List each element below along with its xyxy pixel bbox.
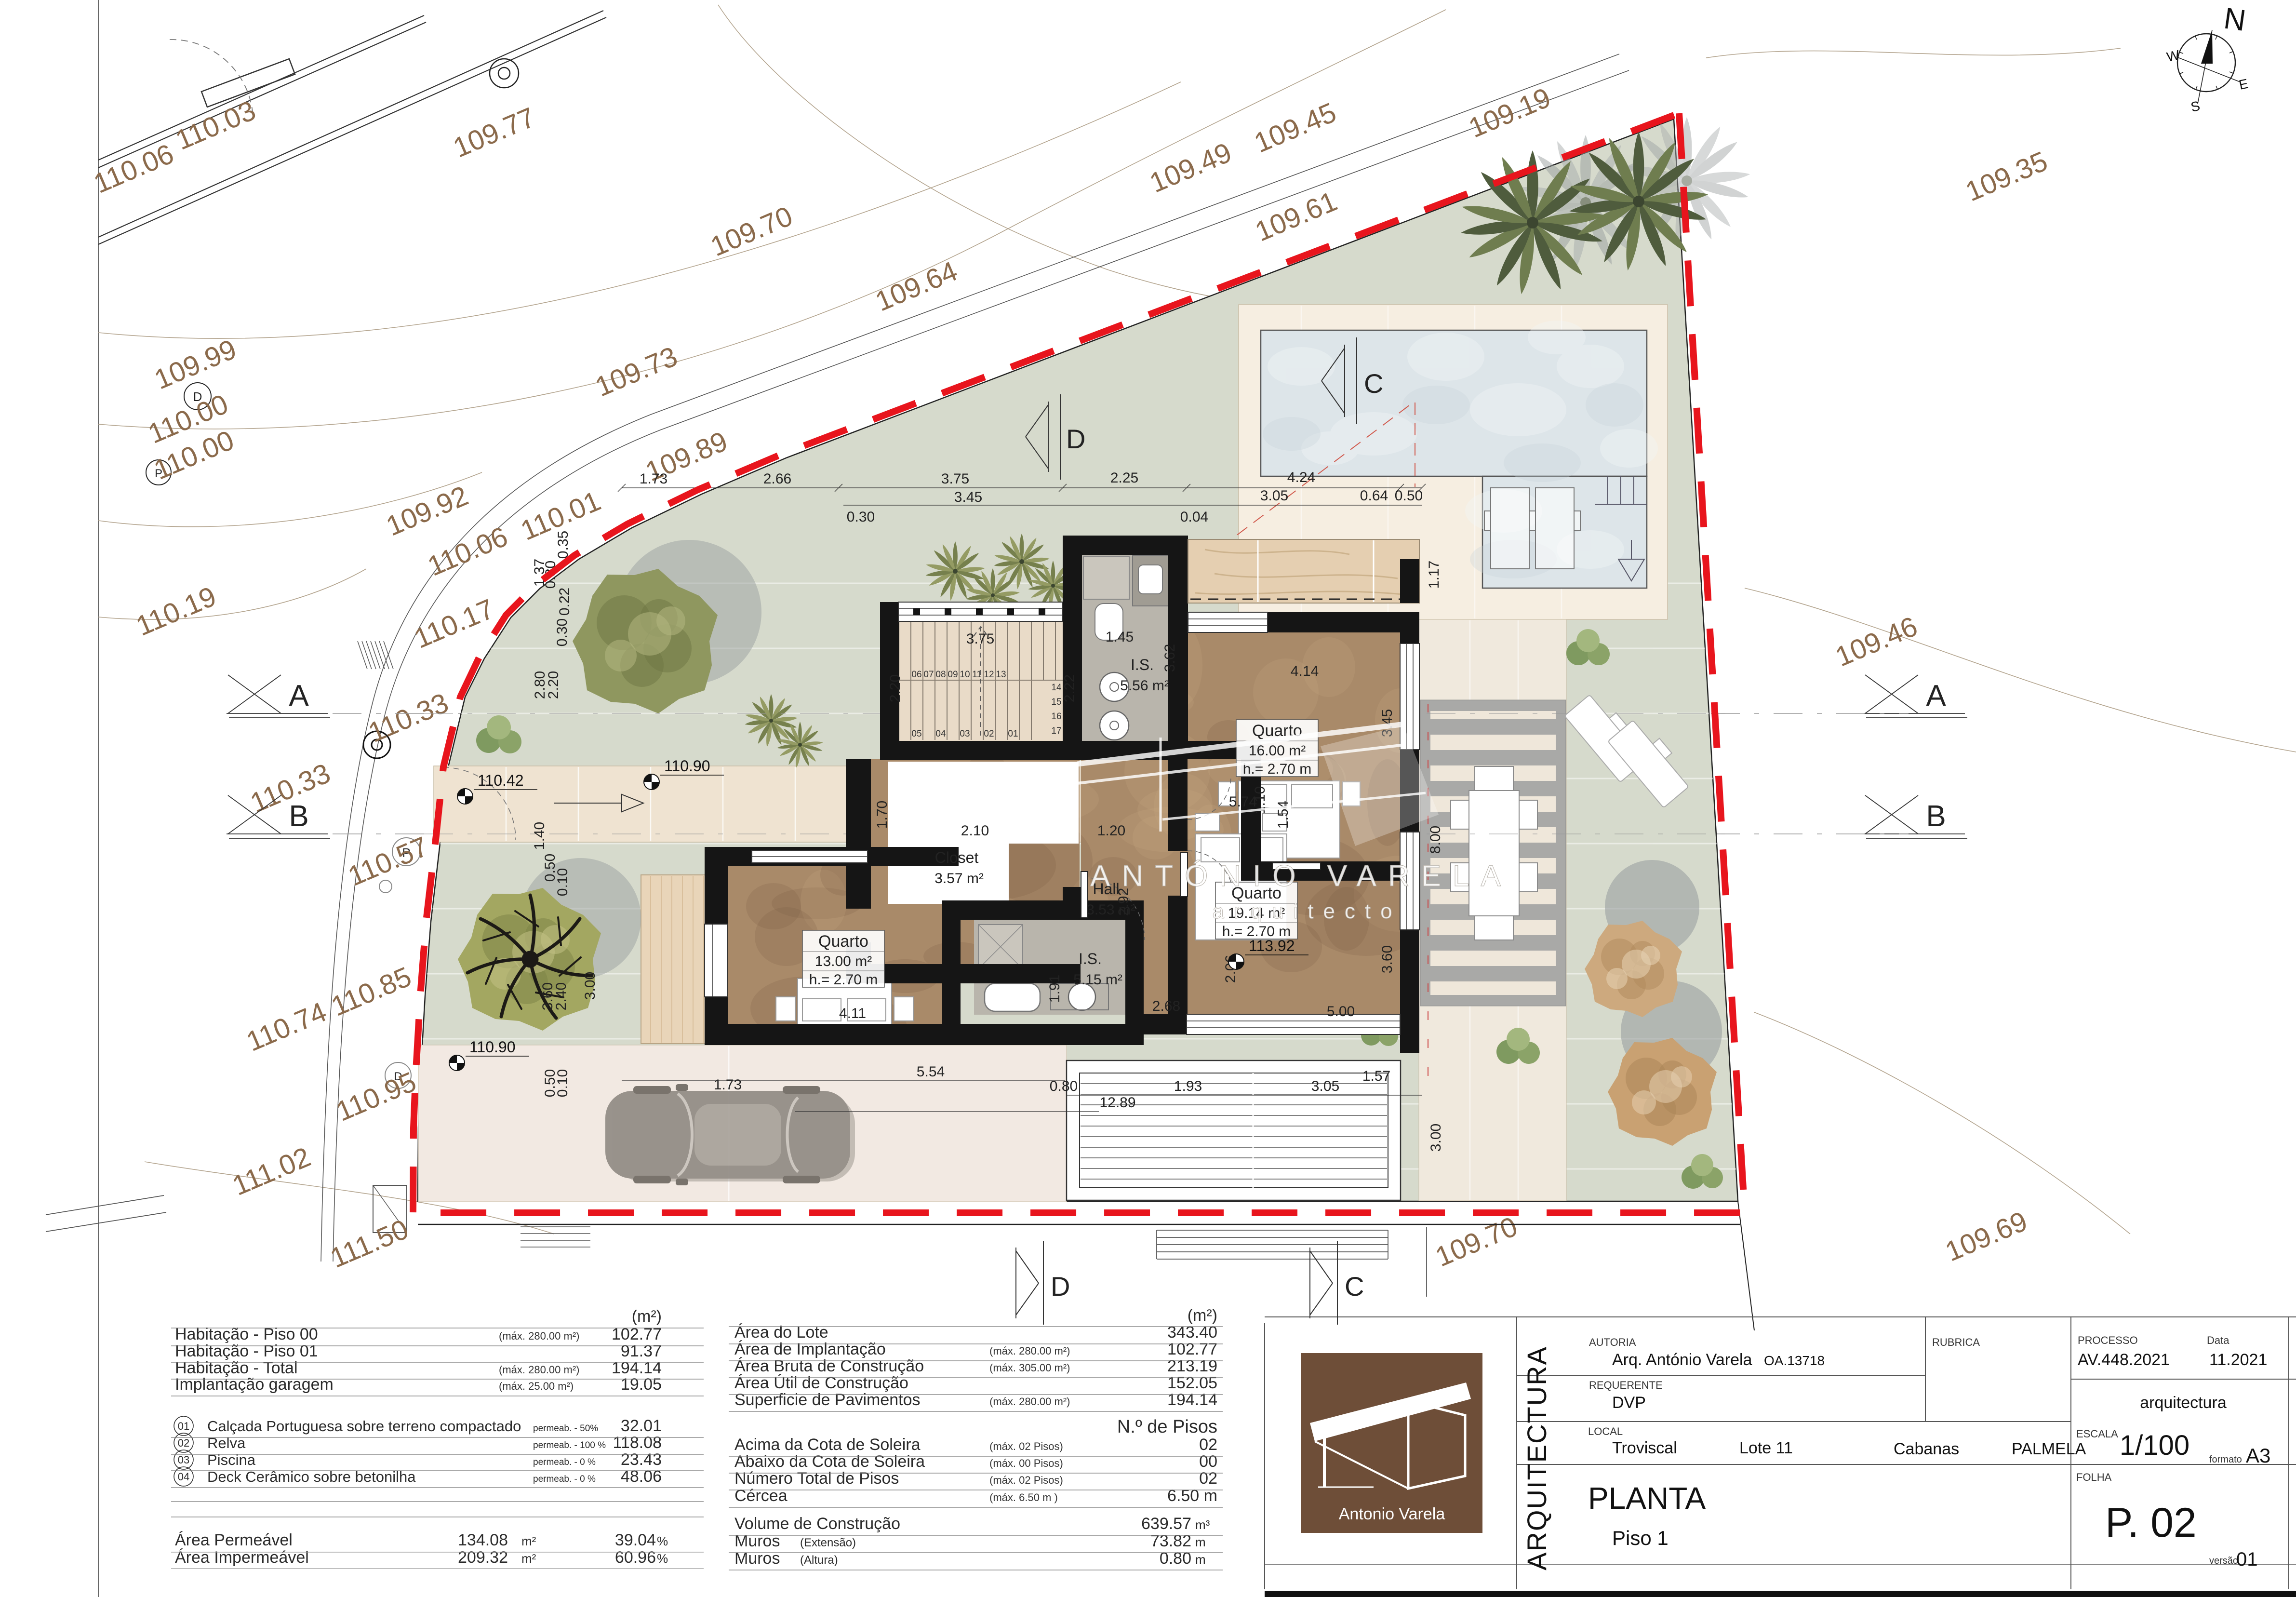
svg-text:4.14: 4.14	[1291, 663, 1319, 679]
svg-text:209.32: 209.32	[458, 1548, 508, 1567]
svg-text:h.= 2.70 m: h.= 2.70 m	[809, 972, 878, 988]
svg-text:(máx. 00 Pisos): (máx. 00 Pisos)	[989, 1457, 1063, 1469]
svg-text:343.40: 343.40	[1167, 1323, 1217, 1342]
svg-text:04: 04	[935, 729, 946, 739]
svg-text:0.10: 0.10	[555, 868, 571, 896]
svg-text:06: 06	[911, 670, 921, 680]
svg-text:2.20: 2.20	[546, 671, 561, 699]
svg-text:permeab. - 0 %: permeab. - 0 %	[533, 1474, 596, 1484]
svg-text:Cércea: Cércea	[734, 1487, 788, 1505]
svg-text:RUBRICA: RUBRICA	[1932, 1336, 1980, 1348]
svg-text:Antonio Varela: Antonio Varela	[1339, 1505, 1445, 1523]
svg-text:PALMELA: PALMELA	[2012, 1440, 2086, 1458]
svg-text:0.22: 0.22	[557, 588, 573, 616]
svg-text:m: m	[1195, 1535, 1206, 1549]
svg-text:2.20: 2.20	[887, 674, 903, 702]
svg-text:A: A	[289, 679, 309, 712]
svg-text:(máx. 305.00 m²): (máx. 305.00 m²)	[989, 1362, 1070, 1374]
svg-text:0.30: 0.30	[554, 618, 570, 646]
svg-text:113.92: 113.92	[1249, 937, 1295, 954]
svg-text:91.37: 91.37	[621, 1342, 662, 1360]
svg-text:5.74: 5.74	[1229, 794, 1257, 810]
svg-text:(m²): (m²)	[1188, 1306, 1217, 1325]
svg-text:Acima da Cota de Soleira: Acima da Cota de Soleira	[734, 1436, 921, 1454]
svg-text:Troviscal: Troviscal	[1612, 1439, 1677, 1457]
svg-text:13: 13	[996, 670, 1006, 680]
svg-text:2.10: 2.10	[961, 823, 989, 839]
svg-text:2.22: 2.22	[1062, 674, 1078, 702]
svg-text:PLANTA: PLANTA	[1588, 1481, 1706, 1516]
svg-text:permeab. - 100 %: permeab. - 100 %	[533, 1440, 606, 1450]
svg-text:AV.448.2021: AV.448.2021	[2078, 1351, 2170, 1369]
svg-text:4.24: 4.24	[1287, 470, 1315, 485]
svg-text:11.2021: 11.2021	[2209, 1351, 2267, 1369]
svg-text:(máx. 280.00 m²): (máx. 280.00 m²)	[499, 1330, 580, 1342]
svg-text:5.54: 5.54	[917, 1064, 945, 1080]
svg-text:FOLHA: FOLHA	[2076, 1471, 2112, 1483]
svg-text:Relva: Relva	[207, 1435, 246, 1451]
svg-text:12.89: 12.89	[1099, 1095, 1135, 1111]
svg-text:01: 01	[2236, 1549, 2258, 1570]
svg-text:01: 01	[178, 1420, 189, 1432]
svg-text:19.05: 19.05	[621, 1375, 662, 1394]
svg-text:0.30: 0.30	[847, 509, 875, 525]
svg-text:3.53 m²: 3.53 m²	[1086, 902, 1135, 918]
svg-text:C: C	[1364, 368, 1383, 399]
svg-text:PROCESSO: PROCESSO	[2078, 1334, 2138, 1346]
svg-text:1.40: 1.40	[532, 822, 547, 850]
svg-text:03: 03	[960, 729, 970, 739]
svg-text:(Altura): (Altura)	[800, 1554, 838, 1567]
svg-text:Volume de Construção: Volume de Construção	[734, 1515, 900, 1533]
svg-text:Área de Implantação: Área de Implantação	[734, 1340, 886, 1358]
svg-text:0.64: 0.64	[1360, 488, 1388, 504]
svg-text:Muros: Muros	[734, 1532, 780, 1550]
svg-text:Quarto: Quarto	[818, 932, 868, 951]
svg-text:D: D	[1066, 424, 1085, 454]
svg-text:(máx. 6.50 m ): (máx. 6.50 m )	[989, 1491, 1058, 1503]
svg-text:1.17: 1.17	[1426, 561, 1442, 589]
svg-text:110.90: 110.90	[469, 1038, 516, 1056]
svg-text:1.20: 1.20	[1097, 823, 1125, 839]
svg-text:194.14: 194.14	[612, 1359, 662, 1377]
svg-text:5.15 m²: 5.15 m²	[1073, 972, 1122, 988]
svg-text:B: B	[289, 800, 308, 833]
svg-text:m²: m²	[521, 1534, 536, 1548]
svg-text:0.10: 0.10	[555, 1069, 571, 1097]
svg-text:3.60: 3.60	[1379, 945, 1395, 973]
svg-text:3.62: 3.62	[1162, 644, 1178, 672]
svg-text:Número Total de Pisos: Número Total de Pisos	[734, 1469, 899, 1488]
svg-text:AUTORIA: AUTORIA	[1589, 1336, 1636, 1348]
svg-text:3.00: 3.00	[1428, 1124, 1444, 1152]
svg-text:1.70: 1.70	[874, 801, 890, 829]
svg-text:1.37: 1.37	[532, 559, 547, 587]
svg-text:4.11: 4.11	[839, 1006, 866, 1021]
svg-text:m³: m³	[1195, 1517, 1210, 1532]
svg-text:3.75: 3.75	[966, 631, 994, 647]
svg-text:152.05: 152.05	[1167, 1374, 1217, 1392]
svg-text:17: 17	[1051, 726, 1061, 736]
svg-text:04: 04	[178, 1471, 189, 1483]
svg-text:(m²): (m²)	[632, 1307, 662, 1326]
svg-text:02: 02	[178, 1437, 189, 1449]
svg-text:Data: Data	[2207, 1334, 2229, 1346]
svg-text:194.14: 194.14	[1167, 1391, 1217, 1409]
svg-text:39.04: 39.04	[615, 1531, 656, 1549]
svg-text:Piscina: Piscina	[207, 1451, 256, 1468]
svg-text:P. 02: P. 02	[2105, 1500, 2197, 1546]
svg-text:Implantação garagem: Implantação garagem	[175, 1375, 334, 1394]
svg-text:Habitação - Piso 01: Habitação - Piso 01	[175, 1342, 318, 1360]
svg-text:2.40: 2.40	[553, 982, 569, 1010]
svg-text:07: 07	[923, 670, 934, 680]
svg-text:639.57: 639.57	[1141, 1515, 1191, 1533]
svg-text:Arq. António Varela: Arq. António Varela	[1612, 1351, 1752, 1369]
svg-text:1/100: 1/100	[2120, 1430, 2189, 1461]
svg-text:Habitação - Total: Habitação - Total	[175, 1359, 298, 1377]
svg-text:LOCAL: LOCAL	[1588, 1425, 1623, 1437]
svg-text:23.43: 23.43	[621, 1450, 662, 1469]
svg-text:Calçada Portuguesa sobre terre: Calçada Portuguesa sobre terreno compact…	[207, 1418, 521, 1435]
svg-text:(máx. 02 Pisos): (máx. 02 Pisos)	[989, 1474, 1063, 1486]
svg-text:1.93: 1.93	[1174, 1078, 1202, 1094]
svg-text:14: 14	[1051, 683, 1062, 693]
svg-text:1.45: 1.45	[1106, 629, 1134, 645]
svg-text:arquitectura: arquitectura	[2140, 1394, 2227, 1412]
svg-text:C: C	[1345, 1271, 1364, 1302]
svg-text:60.96: 60.96	[615, 1548, 656, 1567]
svg-text:formato: formato	[2209, 1454, 2242, 1465]
svg-text:02: 02	[984, 729, 994, 739]
svg-text:1.73: 1.73	[714, 1077, 742, 1093]
svg-text:N.º de Pisos: N.º de Pisos	[1117, 1417, 1217, 1437]
svg-text:A: A	[1926, 679, 1946, 712]
svg-text:0.04: 0.04	[1180, 509, 1208, 525]
svg-text:versão: versão	[2209, 1556, 2238, 1566]
svg-text:8.00: 8.00	[1428, 826, 1443, 854]
svg-text:02: 02	[1199, 1436, 1217, 1454]
svg-text:02: 02	[1199, 1469, 1217, 1488]
svg-text:1.57: 1.57	[1362, 1068, 1390, 1084]
svg-text:N: N	[2222, 2, 2248, 38]
svg-text:Área do Lote: Área do Lote	[734, 1323, 828, 1342]
svg-text:73.82: 73.82	[1150, 1532, 1191, 1550]
svg-text:01: 01	[1008, 729, 1018, 739]
svg-text:D: D	[1051, 1271, 1070, 1302]
svg-text:118.08: 118.08	[613, 1434, 662, 1452]
svg-text:DVP: DVP	[1612, 1394, 1646, 1412]
svg-text:3.05: 3.05	[1311, 1078, 1339, 1094]
svg-text:Área Bruta de Construção: Área Bruta de Construção	[734, 1357, 924, 1375]
svg-text:Superficie de Pavimentos: Superficie de Pavimentos	[734, 1391, 921, 1409]
svg-text:32.01: 32.01	[621, 1417, 662, 1435]
svg-text:Cabanas: Cabanas	[1894, 1440, 1959, 1458]
svg-text:B: B	[1926, 800, 1946, 833]
svg-text:48.06: 48.06	[621, 1467, 662, 1486]
svg-text:Área Impermeável: Área Impermeável	[175, 1548, 309, 1567]
svg-text:110.42: 110.42	[478, 772, 524, 789]
svg-text:Lote 11: Lote 11	[1739, 1439, 1793, 1457]
svg-text:Área Permeável: Área Permeável	[175, 1531, 293, 1549]
svg-text:2.25: 2.25	[1110, 470, 1138, 486]
svg-text:(máx. 25.00 m²): (máx. 25.00 m²)	[499, 1380, 574, 1392]
svg-text:1.54: 1.54	[1275, 801, 1291, 829]
svg-text:0.50: 0.50	[1395, 488, 1423, 504]
svg-text:05: 05	[911, 729, 921, 739]
svg-text:3.57 m²: 3.57 m²	[934, 871, 984, 886]
svg-text:permeab. - 50%: permeab. - 50%	[533, 1423, 598, 1434]
svg-text:ESCALA: ESCALA	[2076, 1428, 2118, 1440]
svg-text:213.19: 213.19	[1167, 1357, 1217, 1375]
svg-text:0.35: 0.35	[555, 531, 571, 559]
svg-text:%: %	[657, 1551, 668, 1566]
svg-text:3.00: 3.00	[582, 972, 598, 1000]
svg-text:102.77: 102.77	[1167, 1340, 1217, 1358]
svg-text:(máx. 280.00 m²): (máx. 280.00 m²)	[989, 1345, 1070, 1357]
svg-text:16: 16	[1051, 711, 1061, 722]
svg-text:5.56 m²: 5.56 m²	[1120, 678, 1169, 694]
svg-text:%: %	[657, 1534, 668, 1548]
svg-text:Muros: Muros	[734, 1549, 780, 1568]
svg-text:Área Útil de Construção: Área Útil de Construção	[734, 1374, 908, 1392]
svg-text:3.45: 3.45	[954, 489, 982, 505]
svg-text:15: 15	[1051, 697, 1061, 707]
svg-text:08: 08	[935, 670, 946, 680]
svg-text:10: 10	[960, 670, 970, 680]
svg-text:12: 12	[984, 670, 994, 680]
svg-text:REQUERENTE: REQUERENTE	[1589, 1379, 1663, 1391]
svg-text:Closet: Closet	[935, 849, 979, 866]
svg-text:m²: m²	[521, 1551, 536, 1566]
svg-text:permeab. - 0 %: permeab. - 0 %	[533, 1457, 596, 1467]
svg-text:3.05: 3.05	[1260, 488, 1288, 504]
svg-text:5.00: 5.00	[1327, 1004, 1355, 1020]
svg-text:(máx. 280.00 m²): (máx. 280.00 m²)	[989, 1396, 1070, 1408]
svg-text:ARQUITECTURA: ARQUITECTURA	[1522, 1346, 1552, 1570]
svg-text:0.80: 0.80	[1160, 1549, 1191, 1568]
svg-text:1.91: 1.91	[1047, 975, 1063, 1003]
svg-text:1.73: 1.73	[640, 471, 667, 487]
svg-text:m: m	[1195, 1552, 1206, 1567]
svg-text:11: 11	[972, 670, 982, 680]
svg-text:A3: A3	[2246, 1444, 2270, 1467]
svg-text:09: 09	[948, 670, 958, 680]
svg-text:(máx. 02 Pisos): (máx. 02 Pisos)	[989, 1440, 1063, 1452]
svg-text:03: 03	[178, 1454, 189, 1466]
svg-text:I.S.: I.S.	[1079, 950, 1102, 967]
svg-text:2.68: 2.68	[1152, 998, 1180, 1014]
svg-text:(Extensão): (Extensão)	[800, 1536, 856, 1549]
svg-text:110.90: 110.90	[664, 757, 710, 775]
svg-text:OA.13718: OA.13718	[1764, 1353, 1825, 1368]
svg-text:Abaixo da Cota de Soleira: Abaixo da Cota de Soleira	[734, 1452, 925, 1471]
svg-text:Piso 1: Piso 1	[1612, 1527, 1669, 1549]
svg-text:I.S.: I.S.	[1131, 656, 1154, 673]
svg-text:3.75: 3.75	[941, 471, 969, 487]
svg-text:00: 00	[1199, 1452, 1217, 1471]
svg-text:6.50 m: 6.50 m	[1167, 1487, 1217, 1505]
svg-text:ANTÓNIO VARELA: ANTÓNIO VARELA	[1090, 859, 1512, 893]
svg-text:134.08: 134.08	[458, 1531, 508, 1549]
svg-text:2.66: 2.66	[763, 471, 791, 487]
svg-text:13.00 m²: 13.00 m²	[815, 953, 872, 969]
svg-text:(máx. 280.00 m²): (máx. 280.00 m²)	[499, 1364, 580, 1376]
svg-text:arquitecto: arquitecto	[1212, 899, 1402, 923]
